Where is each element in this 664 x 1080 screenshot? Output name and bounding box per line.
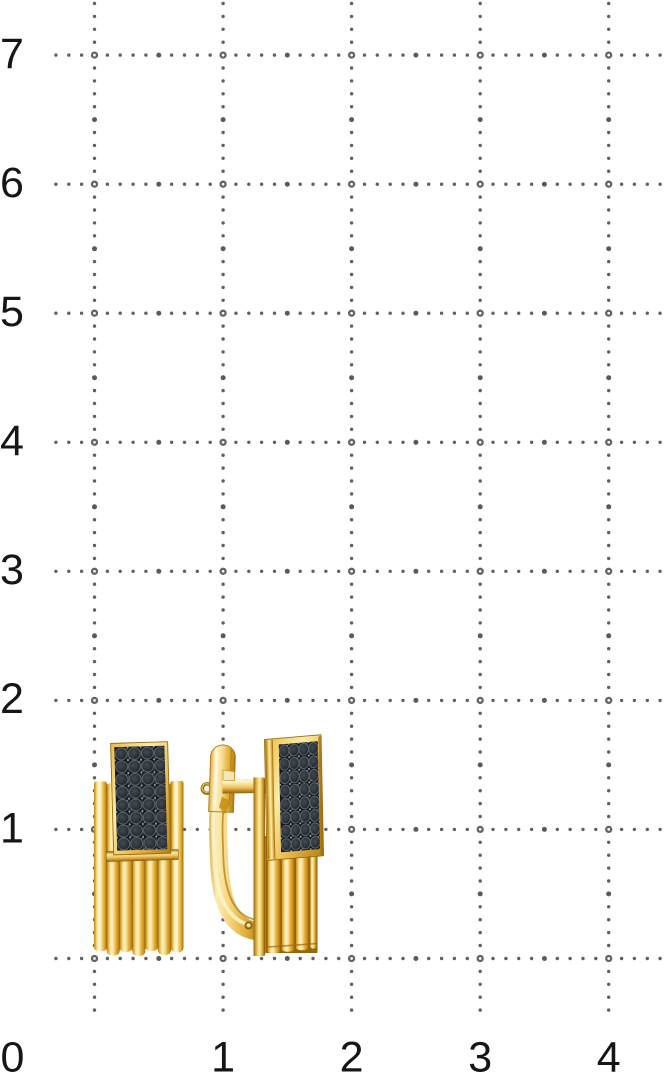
svg-text:3: 3 (468, 1034, 492, 1080)
svg-text:0: 0 (1, 1034, 25, 1080)
svg-text:6: 6 (0, 159, 24, 207)
svg-text:5: 5 (0, 288, 24, 336)
svg-text:7: 7 (0, 30, 24, 78)
svg-text:2: 2 (0, 675, 24, 723)
svg-text:2: 2 (340, 1034, 364, 1080)
svg-text:4: 4 (597, 1034, 621, 1080)
svg-text:3: 3 (0, 546, 24, 594)
svg-text:4: 4 (0, 417, 24, 465)
svg-text:1: 1 (0, 804, 24, 852)
svg-text:1: 1 (211, 1034, 235, 1080)
